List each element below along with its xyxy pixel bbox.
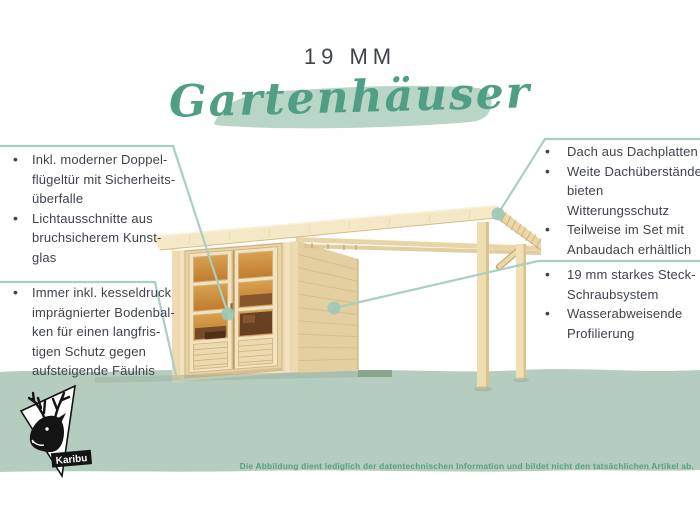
callout-dot-roof xyxy=(492,208,505,221)
callout-text: Dach aus Dachplatten xyxy=(567,142,698,162)
bullet-marker: • xyxy=(13,209,32,268)
callout-group-door: • Inkl. moderner Doppel- flügeltür mit S… xyxy=(13,150,198,267)
canopy-post-front xyxy=(477,222,489,389)
corner-board-right xyxy=(292,241,298,372)
callout-dot-door xyxy=(222,308,235,321)
callout-text: Wasserabweisende Profilierung xyxy=(567,304,682,343)
callout-text: Weite Dachüberstände bieten Witterungssc… xyxy=(567,162,700,221)
callout-group-roof: • Dach aus Dachplatten • Weite Dachübers… xyxy=(545,142,700,259)
bullet-marker: • xyxy=(13,283,32,381)
list-item: • Teilweise im Set mit Anbaudach erhältl… xyxy=(545,220,700,259)
callout-text: Teilweise im Set mit Anbaudach erhältlic… xyxy=(567,220,691,259)
callout-text: 19 mm starkes Steck- Schraubsystem xyxy=(567,265,696,304)
disclaimer-text: Die Abbildung dient lediglich der datent… xyxy=(240,461,694,471)
callout-dot-wall xyxy=(328,302,341,315)
list-item: • Weite Dachüberstände bieten Witterungs… xyxy=(545,162,700,221)
list-item: • Dach aus Dachplatten xyxy=(545,142,700,162)
bullet-marker: • xyxy=(545,265,567,304)
bullet-marker: • xyxy=(13,150,32,209)
list-item: • Wasserabweisende Profilierung xyxy=(545,304,700,343)
bullet-marker: • xyxy=(545,142,567,162)
list-item: • Immer inkl. kesseldruck imprägnierter … xyxy=(13,283,198,381)
list-item: • Lichtausschnitte aus bruchsicherem Kun… xyxy=(13,209,198,268)
bullet-marker: • xyxy=(545,220,567,259)
callout-group-wall-system: • 19 mm starkes Steck- Schraubsystem • W… xyxy=(545,265,700,343)
callout-text: Immer inkl. kesseldruck imprägnierter Bo… xyxy=(32,283,175,381)
door-glass-panes-right xyxy=(239,251,273,337)
bullet-marker: • xyxy=(545,162,567,221)
callout-text: Inkl. moderner Doppel- flügeltür mit Sic… xyxy=(32,150,175,209)
list-item: • Inkl. moderner Doppel- flügeltür mit S… xyxy=(13,150,198,209)
ground-band xyxy=(0,369,700,472)
bullet-marker: • xyxy=(545,304,567,343)
callout-text: Lichtausschnitte aus bruchsicherem Kunst… xyxy=(32,209,161,268)
callout-group-floor: • Immer inkl. kesseldruck imprägnierter … xyxy=(13,283,198,381)
list-item: • 19 mm starkes Steck- Schraubsystem xyxy=(545,265,700,304)
